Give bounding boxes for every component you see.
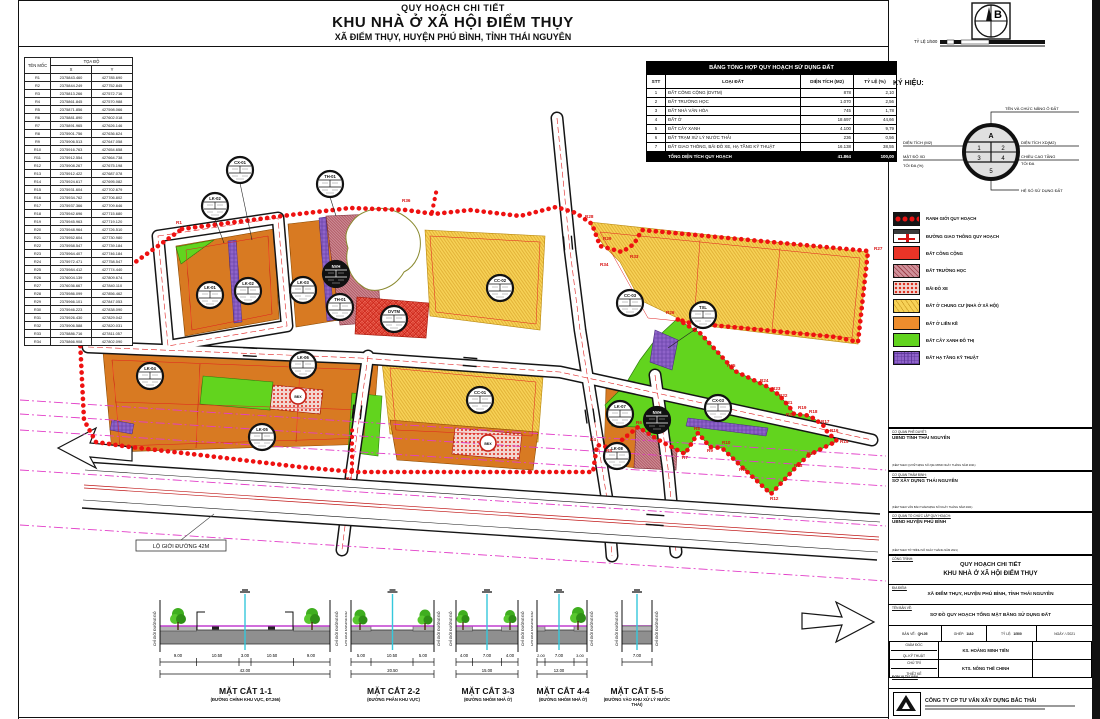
coord-row: R4 2375861.845 427570.988	[25, 98, 133, 106]
coord-row: R30 2375946.223 427838.090	[25, 306, 133, 314]
landuse-row: 1 ĐẤT CÔNG CỘNG (DVTM) 878 2,10	[647, 89, 897, 98]
lot-symbol: CX-01	[227, 157, 253, 183]
landuse-title: BẢNG TỔNG HỢP QUY HOẠCH SỬ DỤNG ĐẤT	[647, 62, 897, 75]
section-title: MẶT CẮT 3-3	[448, 686, 528, 696]
boundary-point-label: R26	[666, 310, 675, 315]
landuse-col-stt: STT	[647, 75, 666, 89]
landuse-row: 2 ĐẤT TRƯỜNG HỌC 1.070 2,56	[647, 98, 897, 107]
coord-col-y: Y	[92, 66, 133, 74]
svg-text:7.00: 7.00	[555, 653, 564, 658]
coord-row: R6 2375881.890 427602.018	[25, 114, 133, 122]
svg-text:10.50: 10.50	[212, 653, 223, 658]
donvi-label: ĐƠN VỊ TƯ VẤN	[892, 675, 1089, 679]
coord-row: R9 2375906.513 427647.058	[25, 138, 133, 146]
boundary-point-label: R18	[809, 409, 818, 414]
lot-label: BĐX	[294, 395, 302, 399]
boundary-point-label: R20	[786, 412, 795, 417]
svg-text:TỶ LỆ 1/500: TỶ LỆ 1/500	[914, 39, 938, 44]
lot-label: BĐX	[484, 442, 492, 446]
lot-label: LK-02	[242, 281, 254, 286]
svg-text:12.00: 12.00	[554, 668, 565, 673]
legend-label: RANH GIỚI QUY HOẠCH	[926, 216, 976, 221]
approve-label: CƠ QUAN PHÊ DUYỆT:	[892, 430, 1089, 434]
lot-symbol: CX-03	[705, 395, 731, 421]
boundary-point-label: R6	[636, 420, 642, 425]
section-subtitle: (ĐƯỜNG NHÓM NHÀ Ở)	[448, 697, 528, 702]
boundary-point-label: R27	[874, 246, 883, 251]
legend-label: ĐẤT HẠ TẦNG KỸ THUẬT	[926, 355, 979, 360]
legend-swatch-school-icon	[893, 264, 920, 278]
svg-text:10.50: 10.50	[267, 653, 278, 658]
svg-text:4.00: 4.00	[506, 653, 515, 658]
coord-row: R16 2375934.762 427706.802	[25, 194, 133, 202]
section-2: CHỈ GIỚI ĐƯỜNG ĐỎ CHỈ GIỚI ĐƯỜNG ĐỎ 5.00…	[345, 588, 442, 702]
coord-row: R22 2375958.547 427739.184	[25, 242, 133, 250]
coordinate-table: TÊN MỐC TỌA ĐỘ X Y R1 2375843.460 427785…	[24, 57, 133, 346]
lot-label: LK-03	[297, 280, 309, 285]
ghep-label: GHÉP:	[954, 632, 965, 636]
legend-item: ĐẤT HẠ TẦNG KỸ THUẬT	[893, 349, 999, 366]
drawing-sheet: LỘ GIỚI ĐƯỜNG 42M CX-01TH-01LK-02LK-01LK…	[0, 0, 1100, 719]
lot-label: TH-01	[324, 174, 336, 179]
lot-symbol: NVH	[323, 261, 349, 287]
svg-text:CHỈ GIỚI ĐƯỜNG ĐỎ: CHỈ GIỚI ĐƯỜNG ĐỎ	[614, 611, 619, 646]
lot-label: LK-02	[209, 196, 221, 201]
flow-arrow-right	[802, 602, 874, 642]
lot-symbol: CC-02	[487, 275, 513, 301]
svg-text:CHỈ GIỚI ĐƯỜNG ĐỎ: CHỈ GIỚI ĐƯỜNG ĐỎ	[520, 611, 525, 646]
project-label: CÔNG TRÌNH:	[892, 557, 1089, 561]
coord-row: R32 2375906.588 427820.031	[25, 322, 133, 330]
lot-symbol: LK-01	[197, 282, 223, 308]
coord-row: R26 2376004.139 427809.674	[25, 274, 133, 282]
lot-label: TXL	[699, 305, 707, 310]
boundary-point-label: R34	[600, 262, 609, 267]
coord-row: R20 2375948.964 427726.510	[25, 226, 133, 234]
sheet-header: QUY HOẠCH CHI TIẾT KHU NHÀ Ở XÃ HỘI ĐIỂM…	[18, 3, 888, 42]
section-4: CHỈ GIỚI ĐƯỜNG ĐỎ CHỈ GIỚI ĐƯỜNG ĐỎ 2.00…	[531, 588, 595, 702]
legend-label: ĐẤT CÔNG CỘNG	[926, 251, 963, 256]
lot-symbol: CC-03	[617, 290, 643, 316]
svg-text:CHỈ GIỚI ĐƯỜNG ĐỎ: CHỈ GIỚI ĐƯỜNG ĐỎ	[654, 611, 659, 646]
boundary-point-label: R25	[727, 363, 736, 368]
coord-col-moc: TÊN MỐC	[25, 58, 51, 74]
legend-item: BÃI ĐỖ XE	[893, 280, 999, 297]
verify-block: CƠ QUAN THẨM ĐỊNH: SỞ XÂY DỰNG THÁI NGUY…	[892, 473, 1089, 483]
boundary-point-label: R1	[176, 220, 182, 225]
drawing-label: TÊN BẢN VẼ:	[892, 606, 1089, 610]
coord-row: R15 2375931.604 427702.679	[25, 186, 133, 194]
coord-row: R17 2375937.366 427709.646	[25, 202, 133, 210]
coord-row: R8 2375901.756 427636.624	[25, 130, 133, 138]
lot-label: LK-05	[256, 427, 268, 432]
svg-text:HỆ SỐ SỬ DỤNG ĐẤT: HỆ SỐ SỬ DỤNG ĐẤT	[1021, 188, 1063, 193]
lot-symbol: TXL	[690, 302, 716, 328]
svg-text:CHỈ GIỚI ĐƯỜNG ĐỎ: CHỈ GIỚI ĐƯỜNG ĐỎ	[334, 611, 339, 646]
legend-item: ĐẤT Ở CHUNG CƯ (NHÀ Ở XÃ HỘI)	[893, 297, 999, 314]
boundary-point-label: R8	[694, 426, 700, 431]
coord-row: R2 2375844.249 427752.845	[25, 82, 133, 90]
coord-row: R1 2375843.460 427785.690	[25, 74, 133, 82]
svg-text:42.00: 42.00	[240, 668, 251, 673]
signature-table: GIÁM ĐỐC QL.KỸ THUẬT KS. HOÀNG MINH TIẾN…	[889, 641, 1092, 678]
org-block: CƠ QUAN TỔ CHỨC LẬP QUY HOẠCH: UBND HUYỆ…	[892, 514, 1089, 524]
legend-label: ĐẤT Ở CHUNG CƯ (NHÀ Ở XÃ HỘI)	[926, 303, 999, 308]
legend-item: ĐƯỜNG GIAO THÔNG QUY HOẠCH	[893, 227, 999, 244]
svg-text:20.50: 20.50	[387, 668, 398, 673]
boundary-point-label: R23	[772, 386, 781, 391]
boundary-point-label: R19	[798, 405, 807, 410]
giamdoc-name: KS. HOÀNG MINH TIẾN	[938, 642, 1032, 660]
landuse-total-label: TỔNG DIỆN TÍCH QUY HOẠCH	[666, 152, 801, 162]
legend-title: KÝ HIỆU:	[893, 80, 924, 87]
coord-rows: R1 2375843.460 427785.690 R2 2375844.249…	[25, 74, 133, 346]
section-subtitle: (ĐƯỜNG VÀO KHU XỬ LÝ NƯỚC THẢI)	[598, 697, 676, 707]
coord-row: R10 2375916.763 427654.658	[25, 146, 133, 154]
legend-swatch-boundary-icon	[893, 212, 920, 226]
svg-text:5.00: 5.00	[419, 653, 428, 658]
landuse-row: 7 ĐẤT GIAO THÔNG, BÃI ĐỖ XE, HẠ TẦNG KỸ …	[647, 143, 897, 152]
org-name: UBND HUYỆN PHÚ BÌNH	[892, 519, 1089, 524]
landuse-table: BẢNG TỔNG HỢP QUY HOẠCH SỬ DỤNG ĐẤT STT …	[646, 61, 897, 162]
lot-symbol: LK-07	[607, 401, 633, 427]
boundary-point-label: R12	[770, 496, 779, 501]
legend-label: ĐẤT TRƯỜNG HỌC	[926, 268, 966, 273]
road42-label: LỘ GIỚI ĐƯỜNG 42M	[136, 514, 226, 551]
project-line1: QUY HOẠCH CHI TIẾT	[892, 562, 1089, 568]
lot-symbol: LK-03	[290, 277, 316, 303]
legend-item: ĐẤT CÔNG CỘNG	[893, 245, 999, 262]
landuse-total-area: 41.864	[801, 152, 854, 162]
company-block: CÔNG TY CP TƯ VẤN XÂY DỰNG BẮC THÁI	[889, 688, 1092, 718]
legend-swatch-road-icon	[893, 229, 920, 243]
landuse-row: 6 ĐẤT TRẠM XỬ LÝ NƯỚC THẢI 236 0,56	[647, 134, 897, 143]
lot-symbol: CC-01	[467, 387, 493, 413]
svg-text:9.00: 9.00	[307, 653, 316, 658]
coord-row: R7 2375891.965 427626.146	[25, 122, 133, 130]
lot-label: DVTM	[388, 309, 400, 314]
boundary-point-label: R5	[606, 448, 612, 453]
lot-label: NVH	[653, 410, 662, 415]
boundary-point-label: R29	[603, 236, 612, 241]
scale-bar: TỶ LỆ 1/500	[914, 39, 1045, 46]
coord-col-x: X	[51, 66, 92, 74]
section-title: MẶT CẮT 2-2	[345, 686, 442, 696]
svg-text:CHỈ GIỚI ĐƯỜNG ĐỎ: CHỈ GIỚI ĐƯỜNG ĐỎ	[152, 611, 157, 646]
section-title: MẶT CẮT 4-4	[531, 686, 595, 696]
boundary-point-label: R7	[682, 455, 688, 460]
landuse-col-loai: LOẠI ĐẤT	[666, 75, 801, 89]
header-line3: XÃ ĐIỂM THỤY, HUYỆN PHÚ BÌNH, TỈNH THÁI …	[18, 32, 888, 42]
svg-text:7.00: 7.00	[633, 653, 642, 658]
svg-text:CHỈ GIỚI ĐƯỜNG ĐỎ: CHỈ GIỚI ĐƯỜNG ĐỎ	[436, 611, 441, 646]
landuse-total-row: TỔNG DIỆN TÍCH QUY HOẠCH 41.864 100,00	[647, 152, 897, 162]
legend-swatch-rowhouse-icon	[893, 316, 920, 330]
svg-text:7.00: 7.00	[483, 653, 492, 658]
coord-row: R33 2375886.716 427811.057	[25, 330, 133, 338]
legend-label: BÃI ĐỖ XE	[926, 286, 948, 291]
coord-row: R12 2375908.267 427675.198	[25, 162, 133, 170]
lot-label: LK-01	[204, 285, 216, 290]
boundary-point-label: R10	[722, 440, 731, 445]
lot-symbol: TH-01	[327, 294, 353, 320]
north-arrow-icon: B	[972, 3, 1010, 39]
svg-text:CHỈ GIỚI ĐƯỜNG ĐỎ: CHỈ GIỚI ĐƯỜNG ĐỎ	[448, 611, 453, 646]
north-and-scale: B TỶ LỆ 1/500	[900, 2, 1080, 50]
location-label: ĐỊA ĐIỂM:	[892, 586, 1089, 590]
project-block: CÔNG TRÌNH: QUY HOẠCH CHI TIẾT KHU NHÀ Ở…	[892, 557, 1089, 577]
coord-row: R31 2375926.430 427829.042	[25, 314, 133, 322]
lot-symbol: LK-02	[235, 278, 261, 304]
svg-text:A: A	[988, 133, 993, 140]
svg-text:B: B	[994, 9, 1002, 21]
qlkt-label: QL.KỸ THUẬT	[891, 650, 937, 658]
section-3: CHỈ GIỚI ĐƯỜNG ĐỎ CHỈ GIỚI ĐƯỜNG ĐỎ 4.00…	[448, 588, 528, 702]
boundary-point-label: R21	[784, 400, 793, 405]
landuse-row: 3 ĐẤT NHÀ VĂN HÓA 745 1,78	[647, 107, 897, 116]
coord-row: R23 2375964.407 427746.184	[25, 250, 133, 258]
legend-item: ĐẤT TRƯỜNG HỌC	[893, 262, 999, 279]
lot-symbol: BĐX	[480, 435, 496, 451]
legend-item: ĐẤT CÂY XANH ĐÔ THỊ	[893, 332, 999, 349]
legend-swatch-parking-icon	[893, 281, 920, 295]
giamdoc-label: GIÁM ĐỐC	[891, 643, 937, 647]
svg-text:TỐI ĐA: TỐI ĐA	[1021, 161, 1035, 166]
header-line1: QUY HOẠCH CHI TIẾT	[18, 3, 888, 13]
section-title: MẶT CẮT 1-1	[148, 686, 343, 696]
lot-label: NVH	[332, 264, 341, 269]
approve-org: UBND TỈNH THÁI NGUYÊN	[892, 435, 1089, 440]
lot-label: CX-03	[712, 398, 725, 403]
legend-label: ĐƯỜNG GIAO THÔNG QUY HOẠCH	[926, 234, 999, 239]
legend-item: RANH GIỚI QUY HOẠCH	[893, 210, 999, 227]
coord-row: R13 2375912.422 427687.078	[25, 170, 133, 178]
lot-label: CC-03	[624, 293, 637, 298]
lot-symbol: LK-08	[604, 443, 630, 469]
location-block: ĐỊA ĐIỂM: XÃ ĐIỂM THỤY, HUYỆN PHÚ BÌNH, …	[892, 586, 1089, 597]
lot-symbol: TH-01	[317, 171, 343, 197]
boundary-point-label: R3	[346, 476, 352, 481]
coord-row: R27 2376036.667 427840.110	[25, 282, 133, 290]
landuse-col-tl: TỶ LỆ (%)	[854, 75, 897, 89]
company-address-line	[925, 705, 1075, 707]
landuse-row: 4 ĐẤT Ở 18.697 44,66	[647, 116, 897, 125]
svg-text:9.00: 9.00	[174, 653, 183, 658]
pond-outline	[346, 209, 420, 291]
coord-row: R24 2375972.471 427758.547	[25, 258, 133, 266]
coord-row: R11 2375912.554 427664.738	[25, 154, 133, 162]
boundary-point-label: R13	[794, 463, 803, 468]
lot-label: CX-01	[234, 160, 247, 165]
boundary-point-label: R22	[779, 393, 788, 398]
tyle-value: 1/500	[1013, 632, 1022, 636]
legend-item: ĐẤT Ở LIỀN KỀ	[893, 314, 999, 331]
boundary-point-label: R16	[830, 428, 839, 433]
lot-symbol-legend: A 1 2 3 4 5 TÊN VÀ CHỨC NĂNG Ô ĐẤT DIỆN …	[893, 94, 1089, 204]
lot-label: LK-07	[614, 404, 626, 409]
svg-text:2.00: 2.00	[537, 653, 546, 658]
page-title: KHU NHÀ Ở XÃ HỘI ĐIỂM THỤY	[18, 14, 888, 31]
company-name: CÔNG TY CP TƯ VẤN XÂY DỰNG BẮC THÁI	[925, 698, 1075, 704]
lot-symbol: LK-06	[290, 352, 316, 378]
boundary-point-label: R28	[585, 214, 594, 219]
location-value: XÃ ĐIỂM THỤY, HUYỆN PHÚ BÌNH, TỈNH THÁI …	[892, 592, 1089, 597]
lot-label: TH-01	[334, 297, 346, 302]
boundary-point-label: R17	[821, 419, 830, 424]
section-title: MẶT CẮT 5-5	[598, 686, 676, 696]
lot-label: LK-06	[297, 355, 309, 360]
lot-label: CC-02	[494, 278, 507, 283]
company-address-line	[925, 708, 1045, 710]
lot-symbol: DVTM	[381, 306, 407, 332]
approve-block: CƠ QUAN PHÊ DUYỆT: UBND TỈNH THÁI NGUYÊN	[892, 430, 1089, 440]
lot-symbol: LK-04	[137, 363, 163, 389]
boundary-point-label: R24	[760, 378, 769, 383]
boundary-point-label: R4	[590, 437, 596, 442]
legend-label: ĐẤT CÂY XANH ĐÔ THỊ	[926, 338, 974, 343]
coord-col-toado: TỌA ĐỘ	[51, 58, 133, 66]
boundary-point-label: R15	[840, 439, 849, 444]
svg-text:MẬT ĐỘ XD: MẬT ĐỘ XD	[903, 154, 925, 159]
svg-text:10.50: 10.50	[387, 653, 398, 658]
approve-note: (KÈM THEO QUYẾT ĐỊNH SỐ /QĐ-UBND NGÀY TH…	[892, 464, 1089, 467]
lot-symbol: LK-05	[249, 424, 275, 450]
svg-text:CHỈ GIỚI ĐƯỜNG ĐỎ: CHỈ GIỚI ĐƯỜNG ĐỎ	[531, 611, 534, 646]
legend-swatch-green-icon	[893, 333, 920, 347]
org-note: (KÈM THEO TỜ TRÌNH SỐ NGÀY THÁNG NĂM 202…	[892, 549, 1089, 552]
section-subtitle: (ĐƯỜNG NHÓM NHÀ Ở)	[531, 697, 595, 702]
svg-text:CHỈ GIỚI ĐƯỜNG ĐỎ: CHỈ GIỚI ĐƯỜNG ĐỎ	[345, 611, 348, 646]
svg-text:CHIỀU CAO TẦNG: CHIỀU CAO TẦNG	[1021, 154, 1055, 159]
legend-label: ĐẤT Ở LIỀN KỀ	[926, 321, 958, 326]
lot-label: LK-04	[144, 366, 156, 371]
lot-label: LK-08	[611, 446, 623, 451]
legend-swatch-apartment-icon	[893, 299, 920, 313]
verify-label: CƠ QUAN THẨM ĐỊNH:	[892, 473, 1089, 477]
ghep-value: 1/A0	[966, 632, 973, 636]
coord-row: R5 2375871.856 427598.066	[25, 106, 133, 114]
landuse-col-dt: DIỆN TÍCH (M2)	[801, 75, 854, 89]
landuse-rows: 1 ĐẤT CÔNG CỘNG (DVTM) 878 2,10 2 ĐẤT TR…	[647, 89, 897, 152]
coord-row: R21 2375952.604 427730.980	[25, 234, 133, 242]
boundary-point-label: R33	[630, 254, 639, 259]
svg-text:TỐI ĐA (%): TỐI ĐA (%)	[903, 163, 924, 168]
ngay-value: NGÀY / /2021	[1054, 632, 1075, 636]
lot-label: CC-01	[474, 390, 487, 395]
block-cc-west	[425, 230, 545, 330]
drawing-name: SƠ ĐỒ QUY HOẠCH TỔNG MẶT BẰNG SỬ DỤNG ĐẤ…	[892, 612, 1089, 617]
legend-swatch-public-icon	[893, 246, 920, 260]
lot-symbol: LK-02	[202, 193, 228, 219]
org-label: CƠ QUAN TỔ CHỨC LẬP QUY HOẠCH:	[892, 514, 1089, 518]
coord-row: R28 2375986.099 427856.462	[25, 290, 133, 298]
svg-text:DIỆN TÍCH (M2): DIỆN TÍCH (M2)	[903, 140, 933, 145]
drawing-info-row: BẢN VẼ: QH-05 GHÉP: 1/A0 TỶ LỆ: 1/500 NG…	[889, 625, 1092, 641]
chutri-label: CHỦ TRÌ	[891, 661, 937, 665]
section-subtitle: (ĐƯỜNG PHÂN KHU VỰC)	[345, 697, 442, 702]
lot-symbol: NVH	[644, 407, 670, 433]
landuse-total-pct: 100,00	[854, 152, 897, 162]
svg-text:15.00: 15.00	[482, 668, 493, 673]
boundary-point-label: R9	[707, 448, 713, 453]
verify-note: (KÈM THEO VĂN BẢN THẨM ĐỊNH SỐ NGÀY THÁN…	[892, 506, 1089, 509]
drawing-block: TÊN BẢN VẼ: SƠ ĐỒ QUY HOẠCH TỔNG MẶT BẰN…	[892, 606, 1089, 617]
svg-text:DIỆN TÍCH XD(M2): DIỆN TÍCH XD(M2)	[1021, 140, 1056, 145]
svg-text:LỘ GIỚI ĐƯỜNG 42M: LỘ GIỚI ĐƯỜNG 42M	[153, 543, 210, 550]
coord-row: R18 2375942.696 427715.680	[25, 210, 133, 218]
svg-text:3.00: 3.00	[576, 653, 585, 658]
banve-value: QH-05	[918, 632, 928, 636]
boundary-point-label: R11	[739, 467, 748, 472]
svg-text:TÊN VÀ CHỨC NĂNG Ô ĐẤT: TÊN VÀ CHỨC NĂNG Ô ĐẤT	[1005, 106, 1059, 111]
legend-list: RANH GIỚI QUY HOẠCH ĐƯỜNG GIAO THÔNG QUY…	[893, 210, 999, 367]
boundary-point-label: R14	[807, 451, 816, 456]
coord-row: R34 2375866.908 427802.090	[25, 338, 133, 346]
section-subtitle: (ĐƯỜNG CHÍNH KHU VỰC, ĐT.266)	[148, 697, 343, 702]
verify-org: SỞ XÂY DỰNG THÁI NGUYÊN	[892, 478, 1089, 483]
banve-label: BẢN VẼ:	[902, 632, 915, 636]
lot-symbol: BĐX	[290, 388, 306, 404]
section-5: CHỈ GIỚI ĐƯỜNG ĐỎ CHỈ GIỚI ĐƯỜNG ĐỎ 7.00…	[598, 588, 676, 707]
company-logo-icon	[893, 692, 921, 716]
svg-text:3.00: 3.00	[241, 653, 250, 658]
boundary-point-label: R36	[402, 198, 411, 203]
section-1: CHỈ GIỚI ĐƯỜNG ĐỎ CHỈ GIỚI ĐƯỜNG ĐỎ 9.00…	[148, 588, 343, 702]
svg-text:5.00: 5.00	[357, 653, 366, 658]
coord-row: R25 2375984.412 427774.440	[25, 266, 133, 274]
svg-text:4.00: 4.00	[460, 653, 469, 658]
coord-row: R29 2375966.101 427847.053	[25, 298, 133, 306]
coord-row: R3 2375813.266 427572.716	[25, 90, 133, 98]
coord-row: R14 2375924.617 427695.082	[25, 178, 133, 186]
svg-text:CHỈ GIỚI ĐƯỜNG ĐỎ: CHỈ GIỚI ĐƯỜNG ĐỎ	[589, 611, 594, 646]
legend-swatch-infrastructure-icon	[893, 351, 920, 365]
tyle-label: TỶ LỆ:	[1001, 632, 1011, 636]
coord-row: R19 2375945.963 427719.120	[25, 218, 133, 226]
landuse-row: 5 ĐẤT CÂY XANH 4.100 9,79	[647, 125, 897, 134]
project-line2: KHU NHÀ Ở XÃ HỘI ĐIỂM THỤY	[892, 570, 1089, 577]
